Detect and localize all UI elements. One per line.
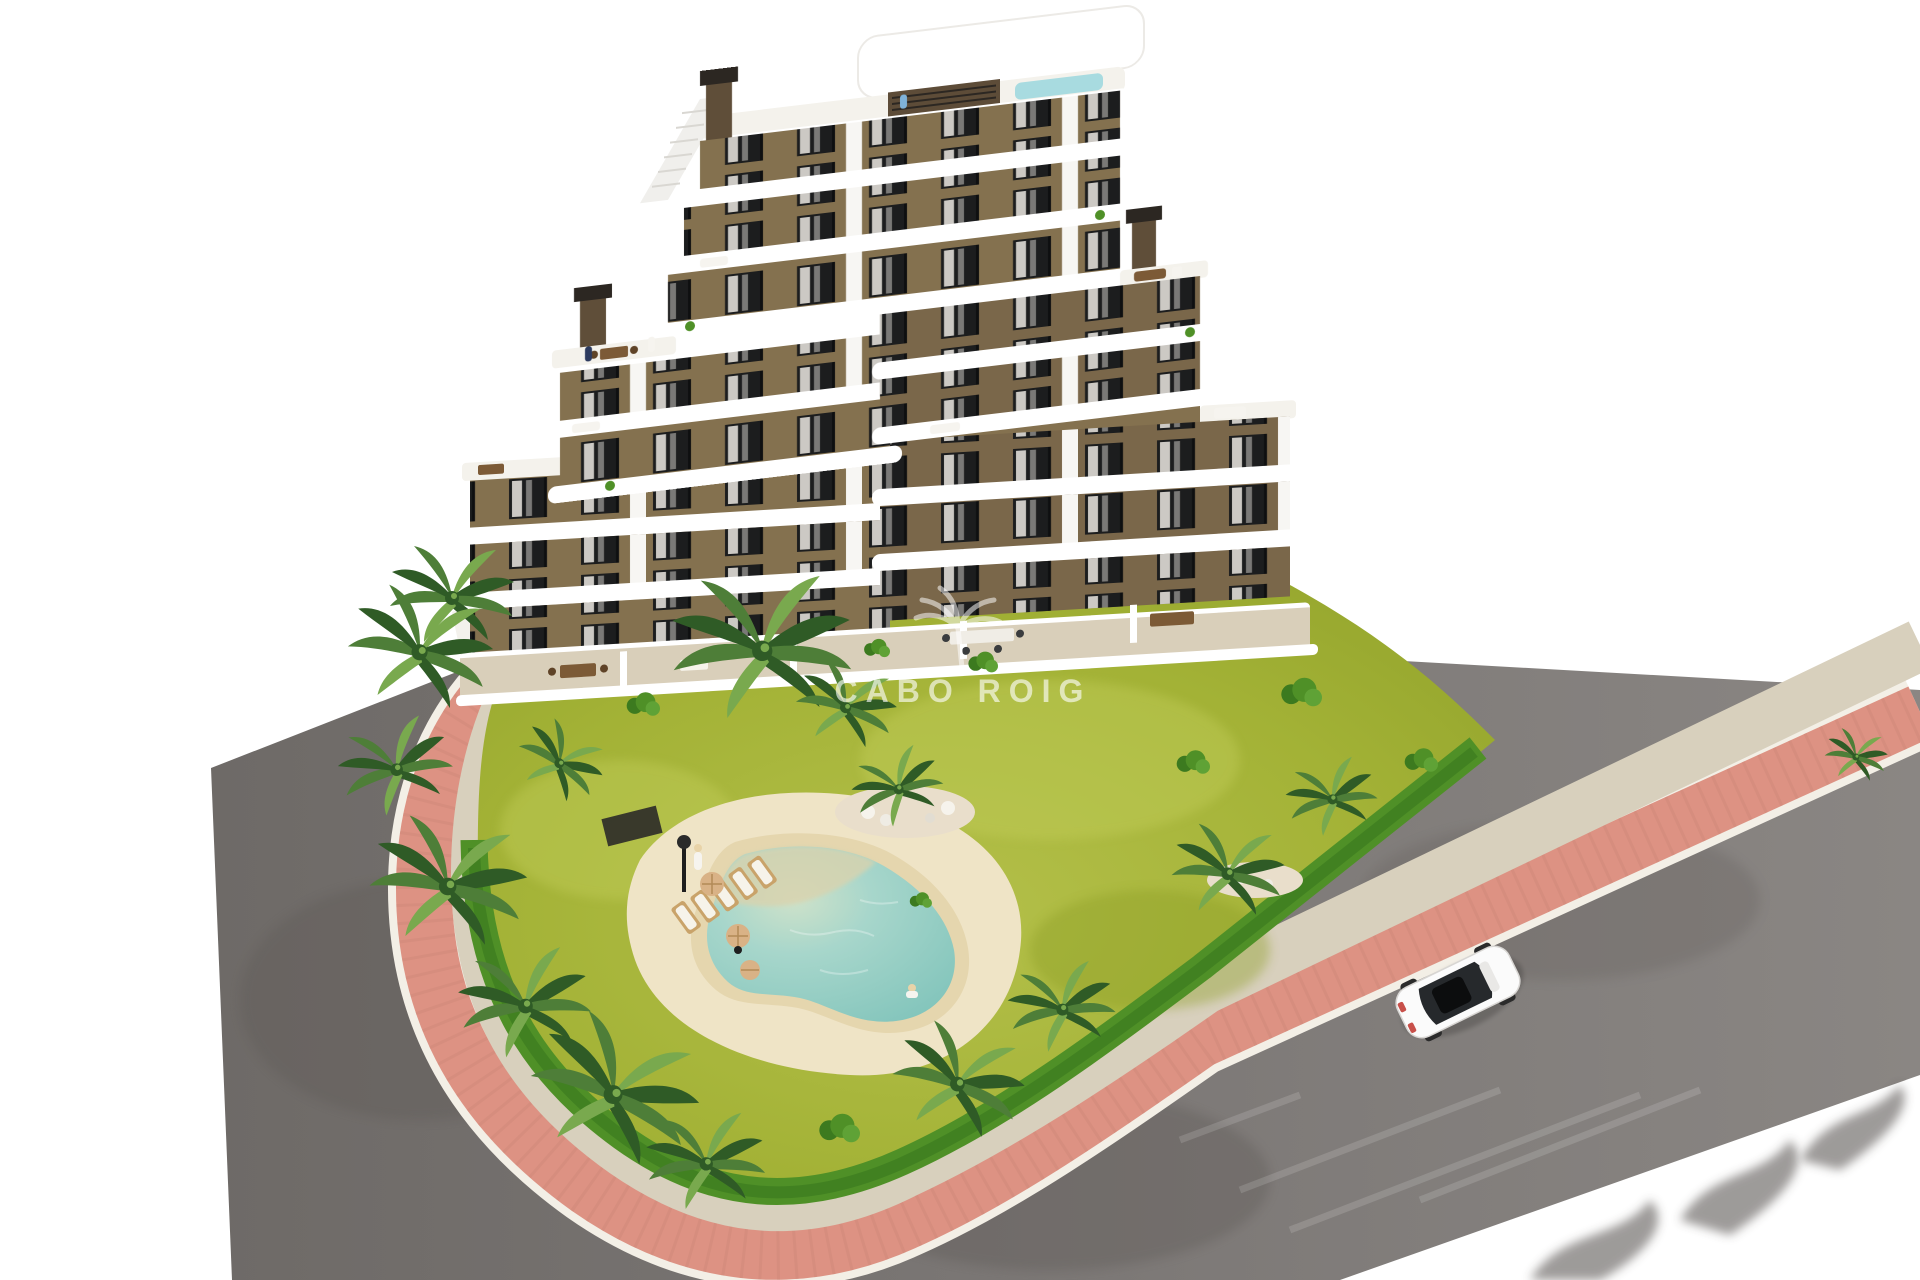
person-standing	[694, 844, 702, 870]
watermark-text: CABO ROIG	[835, 673, 1092, 709]
render-canvas: CABO ROIG	[0, 0, 1920, 1280]
aerial-render-scene: CABO ROIG	[0, 0, 1920, 1280]
